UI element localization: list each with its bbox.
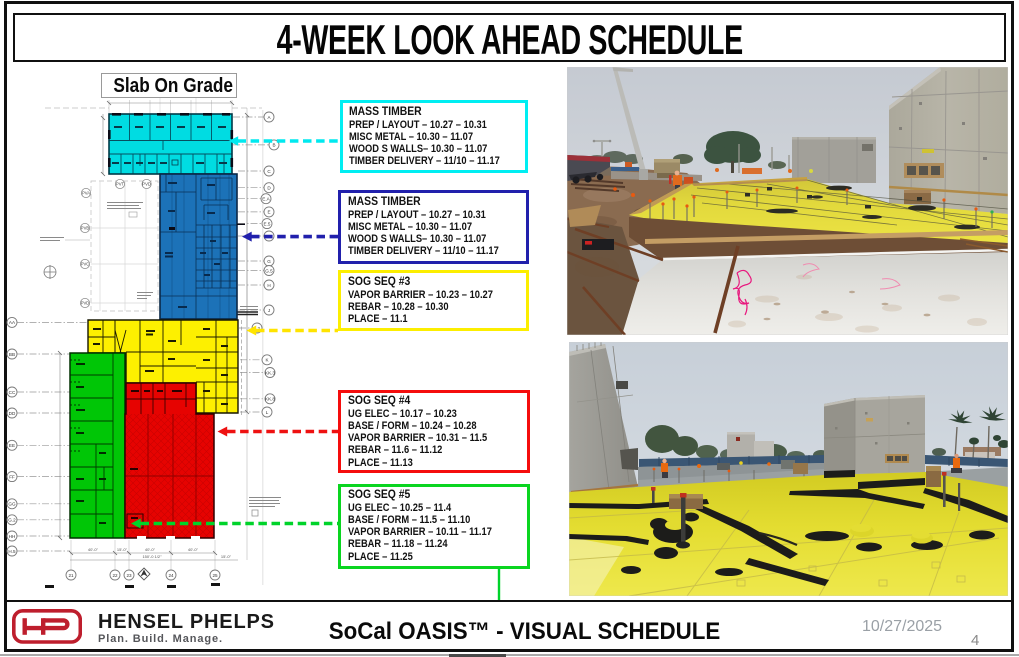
svg-text:E: E [267, 210, 270, 215]
svg-text:PVC: PVC [81, 262, 90, 267]
svg-text:24: 24 [168, 573, 174, 578]
svg-text:KK.3: KK.3 [265, 370, 275, 375]
svg-text:PVT: PVT [116, 182, 125, 187]
svg-text:B: B [272, 143, 275, 148]
svg-text:15'-0": 15'-0" [117, 547, 128, 552]
svg-text:22: 22 [112, 573, 118, 578]
svg-text:GG: GG [8, 502, 16, 507]
svg-text:PVD: PVD [142, 182, 151, 187]
svg-text:15'-0": 15'-0" [221, 554, 232, 559]
svg-text:E.A: E.A [262, 197, 270, 202]
svg-text:G.2: G.2 [8, 518, 16, 523]
svg-text:BB: BB [9, 352, 15, 357]
svg-text:150'-0 1/2": 150'-0 1/2" [142, 554, 162, 559]
svg-text:AA: AA [9, 320, 16, 325]
svg-text:KK.8: KK.8 [265, 397, 275, 402]
svg-text:G.5: G.5 [265, 268, 273, 273]
svg-text:L: L [266, 410, 269, 415]
svg-text:J: J [268, 308, 270, 313]
svg-text:EE: EE [9, 443, 15, 448]
svg-text:HH: HH [9, 534, 16, 539]
svg-text:CC: CC [9, 390, 16, 395]
svg-text:23: 23 [126, 573, 132, 578]
svg-text:40'-0": 40'-0" [145, 547, 156, 552]
svg-text:G: G [267, 259, 271, 264]
svg-text:PVA: PVA [82, 191, 90, 196]
svg-text:PVD: PVD [81, 301, 90, 306]
svg-text:DD: DD [9, 411, 16, 416]
svg-text:H: H [267, 283, 270, 288]
svg-text:40'-0": 40'-0" [188, 547, 199, 552]
svg-text:40'-0": 40'-0" [88, 547, 99, 552]
svg-text:21: 21 [68, 573, 74, 578]
svg-text:FF: FF [9, 474, 15, 479]
svg-text:H.5: H.5 [8, 549, 16, 554]
svg-text:E.5: E.5 [264, 221, 271, 226]
svg-text:25: 25 [212, 573, 218, 578]
svg-text:PVB: PVB [81, 226, 90, 231]
